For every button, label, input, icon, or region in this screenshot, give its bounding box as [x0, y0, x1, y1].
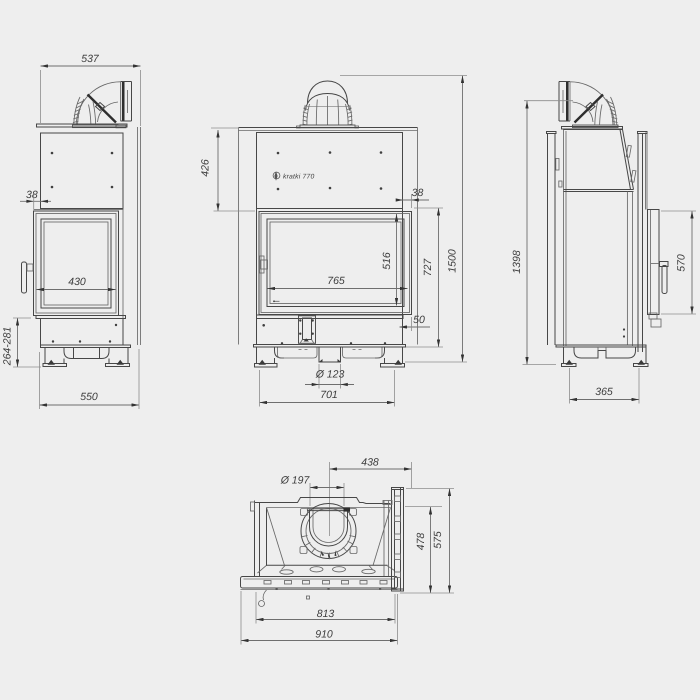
svg-text:765: 765 [327, 275, 345, 287]
svg-text:426: 426 [200, 159, 212, 177]
svg-text:430: 430 [68, 276, 86, 288]
svg-text:550: 550 [80, 391, 98, 403]
svg-text:516: 516 [381, 252, 393, 270]
svg-text:Ø 123: Ø 123 [315, 369, 345, 381]
svg-text:38: 38 [412, 187, 424, 199]
svg-text:264-281: 264-281 [2, 327, 14, 367]
svg-text:701: 701 [320, 389, 338, 401]
svg-text:1398: 1398 [511, 250, 523, 274]
svg-text:38: 38 [26, 189, 38, 201]
svg-text:438: 438 [361, 457, 379, 469]
svg-text:50: 50 [413, 314, 425, 326]
svg-text:kratki 770: kratki 770 [283, 174, 314, 181]
svg-text:570: 570 [676, 254, 688, 272]
svg-text:575: 575 [432, 531, 444, 549]
svg-text:537: 537 [81, 53, 100, 65]
svg-text:727: 727 [422, 258, 434, 277]
svg-text:365: 365 [595, 386, 613, 398]
svg-text:813: 813 [317, 608, 335, 620]
svg-text:910: 910 [315, 629, 333, 641]
svg-text:1500: 1500 [447, 249, 459, 273]
svg-text:478: 478 [415, 533, 427, 551]
svg-text:Ø 197: Ø 197 [280, 475, 311, 487]
